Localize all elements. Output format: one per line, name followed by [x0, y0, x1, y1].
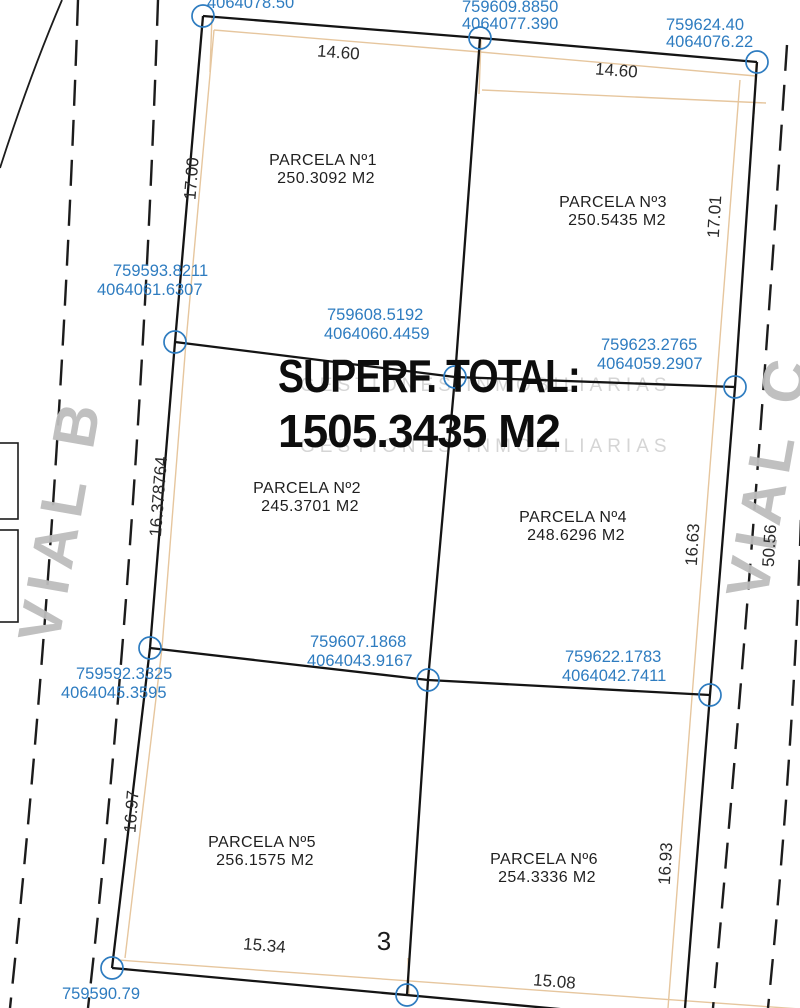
dimension-label: 16.378764 — [146, 456, 171, 538]
dimension-label: 17.01 — [704, 195, 726, 239]
dimension-label: 16.97 — [120, 790, 142, 834]
divider-vertical-center — [407, 38, 480, 995]
parcel-name: PARCELA Nº2 — [253, 480, 361, 497]
coordinate-label: 759608.5192 — [327, 306, 423, 324]
coordinate-label: 4064060.4459 — [324, 325, 430, 343]
dimension-label: 16.93 — [655, 842, 677, 886]
total-surface: SUPERF. TOTAL: 1505.3435 M2 — [278, 350, 580, 457]
parcel-area: 248.6296 M2 — [527, 527, 625, 544]
coordinate-label: 759624.40 — [666, 16, 744, 34]
parcel-area: 245.3701 M2 — [261, 498, 359, 515]
dimension-label: 17.00 — [180, 157, 202, 201]
coordinate-label: 759623.2765 — [601, 336, 697, 354]
coordinate-label: 759590.79 — [62, 985, 140, 1003]
road-label-vial-b: VIAL B — [5, 390, 114, 647]
coordinate-label: 4064077.390 — [462, 15, 558, 33]
coordinate-label: 759593.8211 — [113, 262, 208, 280]
coordinate-label: 4064045.3595 — [61, 684, 167, 702]
coordinate-label: 759622.1783 — [565, 648, 661, 666]
building-outline — [0, 443, 18, 519]
coordinate-label: 759592.3325 — [76, 665, 172, 683]
parcel-name: PARCELA Nº3 — [559, 194, 667, 211]
parcel-area: 254.3336 M2 — [498, 869, 596, 886]
road-curve-top-left — [0, 0, 62, 168]
coordinate-label: 4064076.22 — [666, 33, 753, 51]
parcel-name: PARCELA Nº1 — [269, 152, 377, 169]
coordinate-label: 759609.8850 — [462, 0, 558, 16]
dimension-label: 16.63 — [682, 523, 704, 567]
sheet-number: 3 — [377, 926, 391, 956]
road-label-vial-c: VIAL C — [713, 346, 800, 603]
parcel-name: PARCELA Nº4 — [519, 509, 627, 526]
parcel-area: 250.3092 M2 — [277, 170, 375, 187]
coordinate-label: 759607.1868 — [310, 633, 406, 651]
parcel-name: PARCELA Nº5 — [208, 834, 316, 851]
parcel-area: 256.1575 M2 — [216, 852, 314, 869]
coordinate-label: 4064042.7411 — [562, 667, 666, 685]
coordinate-label: 4064078.50 — [207, 0, 294, 12]
cadastral-plan: GESTIONES INMOBILIARIAS GESTIONES INMOBI… — [0, 0, 800, 1008]
parcel-area: 250.5435 M2 — [568, 212, 666, 229]
dimension-label: 14.60 — [594, 59, 638, 81]
dimension-label: 50.56 — [759, 524, 781, 568]
coordinate-label: 4064061.6307 — [97, 281, 203, 299]
coordinate-label: 4064059.2907 — [597, 355, 703, 373]
coordinate-label: 4064043.9167 — [307, 652, 413, 670]
offset-line-top-right — [482, 90, 766, 103]
boundary-bottom — [112, 968, 690, 1008]
dimension-label: 15.08 — [532, 970, 576, 992]
total-surface-label: SUPERF. TOTAL: — [278, 350, 580, 402]
total-surface-value: 1505.3435 M2 — [278, 405, 560, 457]
dimension-label: 14.60 — [316, 41, 360, 63]
parcel-labels: PARCELA Nº1 250.3092 M2 PARCELA Nº3 250.… — [208, 152, 667, 886]
parcel-name: PARCELA Nº6 — [490, 851, 598, 868]
dimension-label: 15.34 — [242, 934, 286, 956]
